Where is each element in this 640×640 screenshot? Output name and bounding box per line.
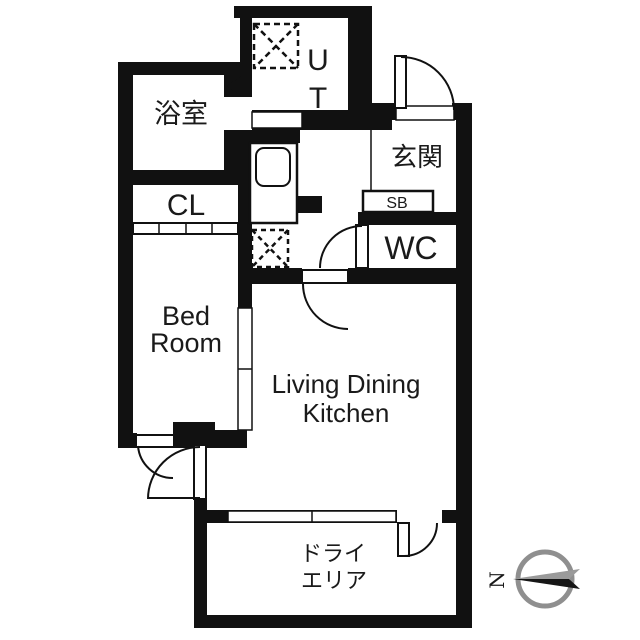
label-bedroom-1: Bed bbox=[162, 301, 210, 331]
wall-ldk-top-right bbox=[348, 268, 458, 284]
ut-door bbox=[252, 112, 302, 128]
floorplan-page: 浴室 CL Bed Room Living Dining Kitchen 玄関 … bbox=[0, 0, 640, 640]
wall-outer-left bbox=[118, 62, 133, 448]
label-closet: CL bbox=[167, 189, 205, 222]
label-toilet: WC bbox=[384, 230, 437, 266]
compass: N bbox=[485, 552, 580, 606]
wall-bedroom-step bbox=[213, 430, 247, 448]
wall-corridor-stub bbox=[296, 196, 322, 213]
wall-ldk-top-left bbox=[250, 268, 302, 284]
compass-north-label: N bbox=[485, 571, 509, 589]
washer-place-icon bbox=[254, 24, 298, 68]
label-ldk-1: Living Dining bbox=[272, 369, 421, 399]
label-utility-2: T bbox=[309, 82, 327, 115]
wall-ut-top bbox=[234, 6, 372, 18]
label-utility-1: U bbox=[307, 44, 329, 77]
label-bathroom: 浴室 bbox=[154, 99, 208, 129]
wall-dryarea-bottom bbox=[194, 615, 472, 628]
ldk-door-leaf bbox=[302, 270, 348, 283]
dryarea-window bbox=[228, 511, 396, 522]
wc-door-leaf bbox=[356, 225, 368, 268]
fridge-place-icon bbox=[252, 230, 288, 267]
wall-sb-bottom bbox=[358, 212, 458, 225]
label-entrance: 玄関 bbox=[391, 142, 443, 172]
floorplan-drawing: 浴室 CL Bed Room Living Dining Kitchen 玄関 … bbox=[0, 0, 640, 640]
wall-outer-right bbox=[456, 103, 472, 628]
wall-entry-left bbox=[348, 103, 398, 120]
label-bedroom-2: Room bbox=[150, 328, 222, 358]
ldk-west-door-arc bbox=[148, 447, 200, 499]
entrance-door-leaf bbox=[395, 56, 406, 108]
bath-door-opening bbox=[224, 97, 252, 130]
ldk-door-arc bbox=[303, 284, 348, 329]
label-dryarea-2: エリア bbox=[301, 568, 367, 593]
wall-bath-cl-divider bbox=[118, 170, 238, 185]
kitchen-sink bbox=[256, 148, 290, 186]
closet-folding-door bbox=[133, 223, 238, 234]
wall-ut-left bbox=[240, 8, 252, 66]
dryarea-door-opening bbox=[397, 509, 442, 524]
entrance-door-arc bbox=[401, 57, 454, 110]
label-ldk-2: Kitchen bbox=[303, 398, 390, 428]
wall-ut-right bbox=[348, 18, 372, 112]
bedroom-door-leaf bbox=[136, 435, 174, 447]
label-shoebox: SB bbox=[386, 195, 407, 212]
label-dryarea-1: ドライ bbox=[300, 541, 366, 566]
ldk-west-door-leaf bbox=[194, 445, 206, 499]
wall-bedroom-corner bbox=[118, 433, 137, 448]
dryarea-door-leaf bbox=[398, 523, 409, 556]
wall-dryarea-left bbox=[194, 499, 207, 628]
wall-kitchen-top bbox=[238, 130, 300, 143]
